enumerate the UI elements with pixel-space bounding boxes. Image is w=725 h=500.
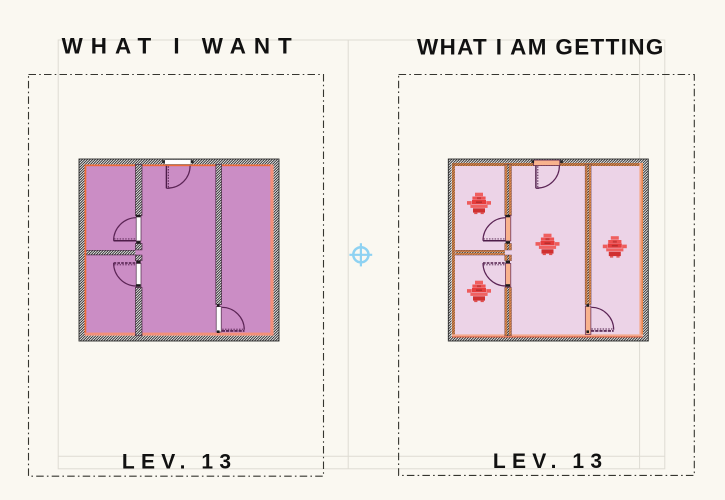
svg-text:LEV. 13: LEV. 13 bbox=[122, 451, 238, 474]
svg-text:LEV. 13: LEV. 13 bbox=[493, 450, 609, 473]
svg-text:WHAT I AM GETTING: WHAT I AM GETTING bbox=[417, 34, 665, 59]
svg-text:WHAT I WANT: WHAT I WANT bbox=[62, 34, 300, 59]
